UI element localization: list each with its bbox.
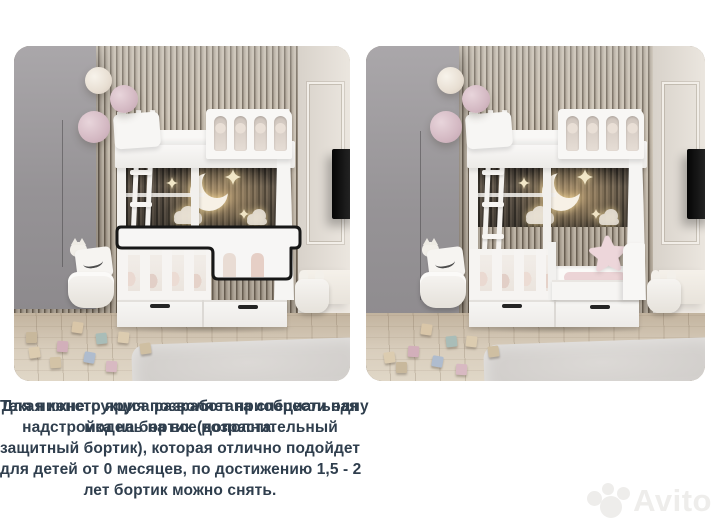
arch-window	[223, 253, 236, 277]
ladder-rung	[482, 234, 504, 239]
ladder-rung	[482, 202, 504, 207]
tv-screen	[687, 149, 705, 219]
toy-basket	[420, 246, 466, 308]
toy-block	[83, 351, 96, 364]
addon-rail-highlight	[14, 46, 350, 381]
arch-cutout	[566, 116, 579, 151]
upper-guard-rail	[558, 109, 644, 159]
basket-body	[647, 279, 681, 313]
pompom-decor	[430, 111, 462, 143]
photo-with-addon-rail	[14, 46, 350, 381]
toy-basket	[647, 272, 681, 313]
toy-block	[396, 362, 407, 373]
drawer-handle	[590, 305, 610, 309]
caption-line: защитный бортик), которая отлично подойд…	[0, 438, 360, 459]
toy-block	[383, 351, 395, 363]
pompom-decor	[110, 85, 138, 113]
caption-right: Такая конструкция позволяет приобрести о…	[0, 396, 360, 438]
arch-cutout	[606, 116, 619, 151]
toy-block	[95, 332, 107, 344]
pompom-decor	[78, 111, 110, 143]
pompom-decor	[437, 67, 464, 94]
pompom-decor	[462, 85, 490, 113]
arch-cutout	[626, 116, 639, 151]
side-guard	[623, 243, 645, 300]
pompom-decor	[85, 67, 112, 94]
avito-watermark: Avito	[587, 482, 712, 520]
toy-block	[106, 361, 118, 373]
rug	[483, 337, 705, 381]
toy-block	[465, 335, 477, 347]
toy-block	[117, 331, 129, 343]
caption-line: модель на все возраста.	[0, 417, 360, 438]
toy-block	[71, 321, 83, 333]
avito-logo-icon	[587, 482, 633, 520]
toy-block	[445, 335, 457, 347]
watermark-text: Avito	[633, 482, 712, 520]
toy-block	[456, 364, 468, 376]
toy-block	[26, 332, 37, 343]
listing-image: Для нижнего яруса разработана специальна…	[0, 0, 720, 525]
headboard	[465, 111, 513, 149]
caption-line: Такая конструкция позволяет приобрести о…	[0, 396, 360, 417]
toy-block	[408, 346, 420, 358]
drawer-handle	[502, 304, 522, 308]
toy-block	[487, 345, 499, 357]
caption-line: для детей от 0 месяцев, по достижению 1,…	[0, 459, 360, 480]
star-icon	[518, 177, 530, 189]
toy-block	[50, 357, 62, 369]
toy-block	[420, 323, 432, 335]
toy-block	[431, 355, 444, 368]
ladder-rung	[482, 170, 504, 175]
arch-cutout	[586, 116, 599, 151]
arch-window	[251, 253, 264, 277]
basket-body	[420, 272, 466, 308]
photo-open-bed	[366, 46, 705, 381]
star-icon	[577, 169, 593, 185]
lower-slat-rail	[470, 249, 553, 300]
toy-block	[57, 341, 69, 353]
toy-block	[139, 342, 151, 354]
drawer-unit	[469, 300, 639, 327]
caption-line: лет бортик можно снять.	[0, 480, 360, 501]
cloud-icon	[599, 209, 619, 225]
toy-block	[28, 346, 40, 358]
drawer-seam	[554, 300, 556, 327]
